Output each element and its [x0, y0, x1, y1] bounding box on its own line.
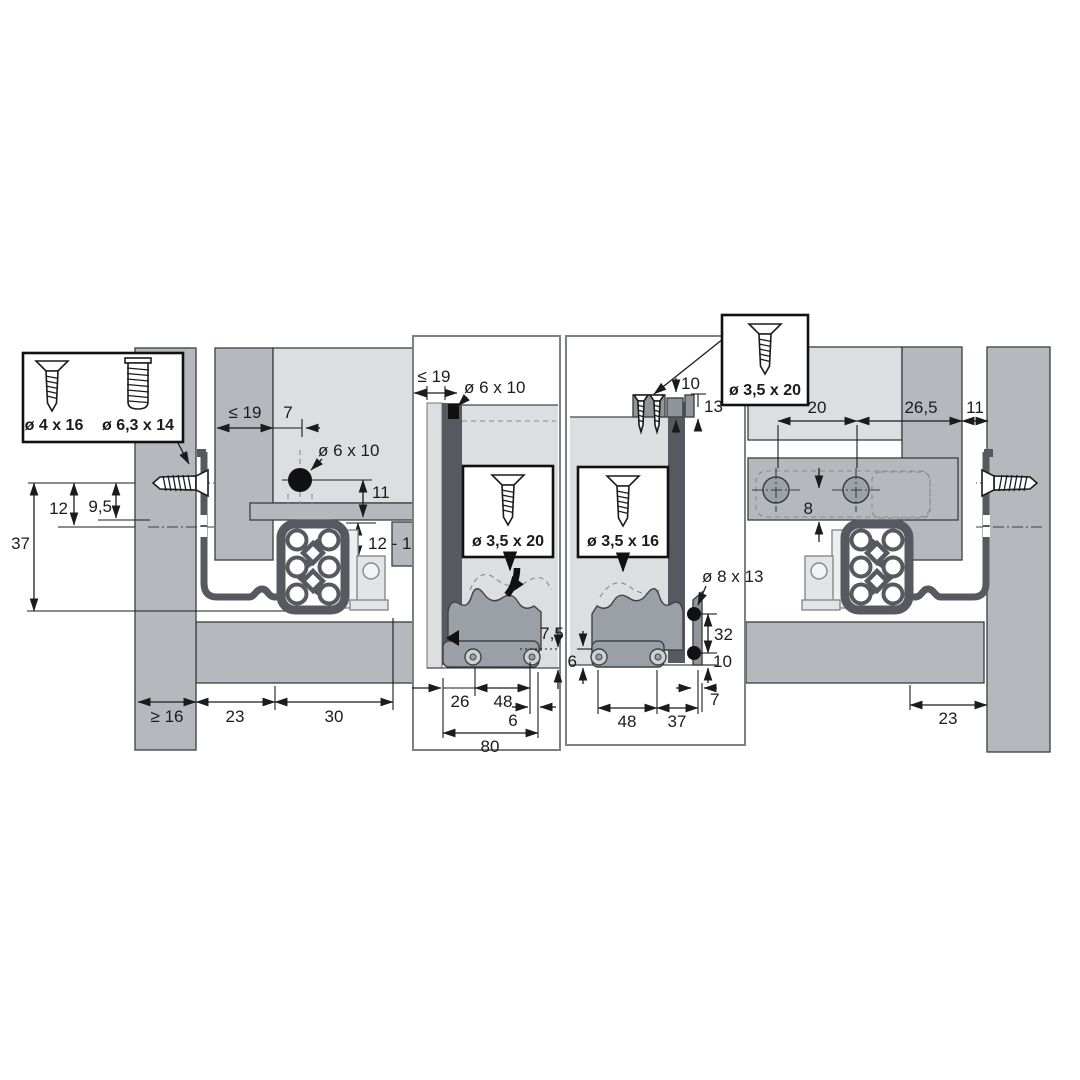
dim-hook-center: 9,5 [88, 497, 112, 516]
dim-hole-span: 32 [714, 625, 733, 644]
dim-wall-offset: 11 [966, 398, 984, 417]
dim-screw-span-ml: 48 [494, 692, 513, 711]
front-panel-bar [427, 403, 442, 668]
dim-front: 20 [808, 398, 827, 417]
dim-top-height: 10 [681, 374, 700, 393]
top-screw-label: ø 3,5 x 20 [729, 382, 801, 399]
dim-total-ml: 80 [481, 737, 500, 756]
wall-screw-label-1: ø 4 x 16 [25, 417, 84, 434]
back-screw-label: ø 3,5 x 16 [587, 533, 659, 550]
hook-dowel-label: ø 8 x 13 [702, 567, 763, 586]
panel-front-fixing: ≤ 19 ø 6 x 10 7,5 26 48 6 80 [412, 336, 564, 756]
dim-bottom-offset: 10 [713, 652, 732, 671]
dim-below-top: 11 [372, 483, 390, 502]
dowel-plug [448, 404, 459, 419]
dim-clearance-right: 23 [939, 709, 958, 728]
dim-panel-max: ≤ 19 [229, 403, 262, 422]
dim-top-depth: 13 [704, 397, 723, 416]
dim-below-center: 8 [804, 499, 813, 518]
hook-dowel [687, 607, 701, 621]
dim-edge-mr: 37 [668, 712, 687, 731]
drawer-runner-installation-diagram: ≤ 19 7 ø 6 x 10 11 12 - 13 12 9,5 37 [0, 0, 1080, 1080]
dowel-hole [288, 468, 312, 492]
dim-offset: 7 [283, 403, 292, 422]
euro-screw-icon [125, 358, 151, 409]
front-screw-label: ø 3,5 x 20 [472, 533, 544, 550]
drawer-bottom-board [250, 503, 413, 520]
cabinet-side-wall-right [987, 347, 1050, 752]
dim-mid: 26,5 [904, 398, 937, 417]
dim-clearance: 23 [226, 707, 245, 726]
hook-dowel [687, 646, 701, 660]
bottom-panel-right [746, 622, 984, 683]
dim-edge-ml: 6 [508, 711, 517, 730]
dim-hook-width: 7 [710, 690, 719, 709]
dim-screw-center: 12 [49, 499, 68, 518]
drawer-side-panel [215, 348, 273, 560]
dowel-label: ø 6 x 10 [318, 441, 379, 460]
dim-screw-span-mr: 48 [618, 712, 637, 731]
dim-recess: 7,5 [540, 624, 564, 643]
bottom-panel-left [196, 622, 415, 683]
dowel-label-ml: ø 6 x 10 [464, 378, 525, 397]
dim-total: 37 [11, 534, 30, 553]
dim-depth: 30 [325, 707, 344, 726]
technical-drawing-page: ≤ 19 7 ø 6 x 10 11 12 - 13 12 9,5 37 [0, 0, 1080, 1080]
drawer-side-panel-right [902, 347, 962, 560]
dim-front-inset: 26 [451, 692, 470, 711]
dim-panel-max-ml: ≤ 19 [418, 367, 451, 386]
dim-wall-min: ≥ 16 [151, 707, 184, 726]
wall-screw-label-2: ø 6,3 x 14 [102, 417, 174, 434]
dim-recess-mr: 6 [568, 652, 577, 671]
